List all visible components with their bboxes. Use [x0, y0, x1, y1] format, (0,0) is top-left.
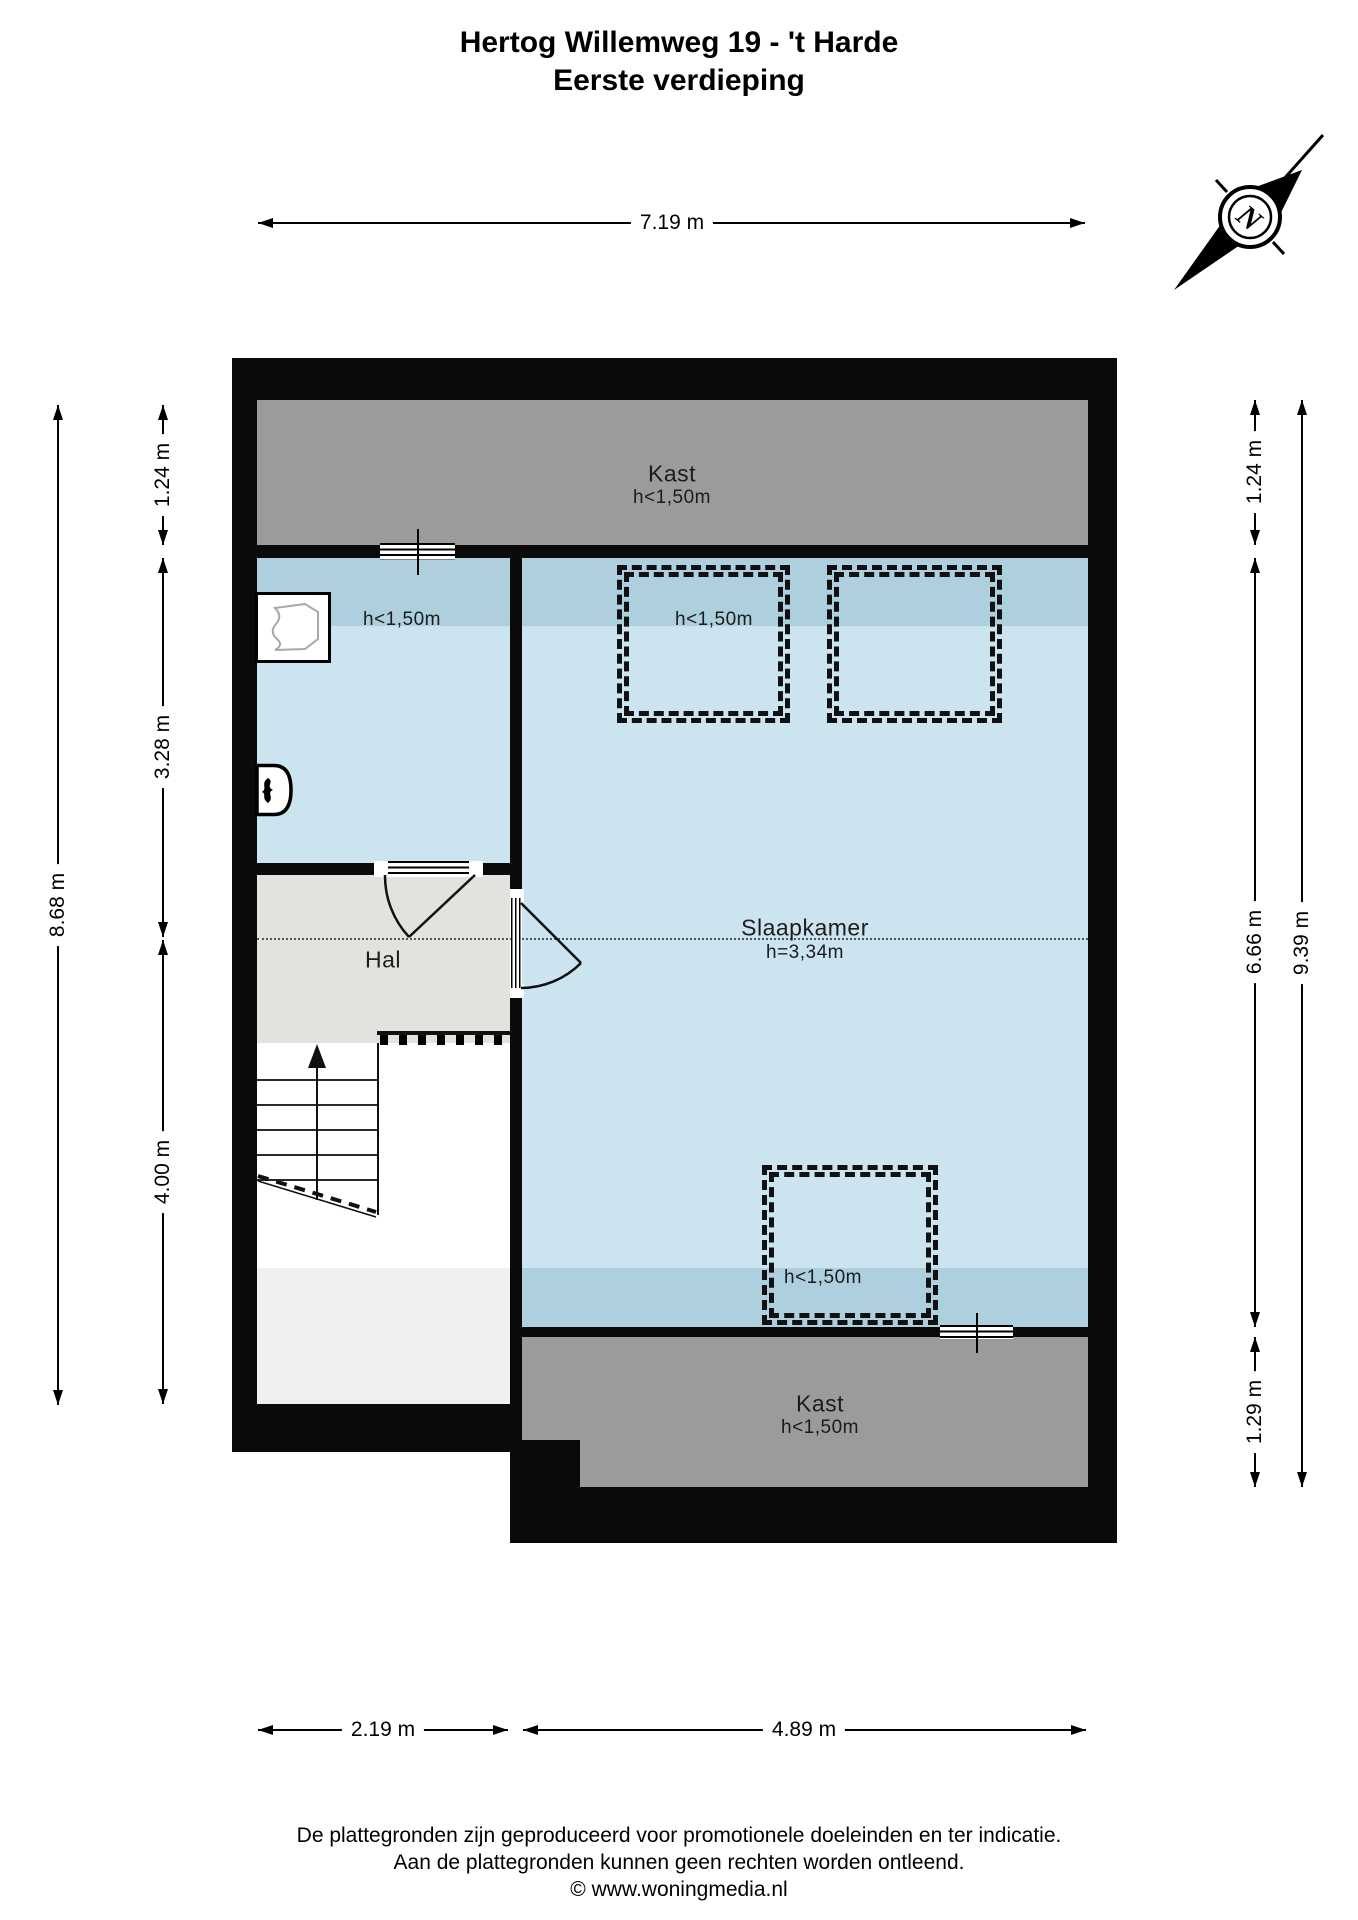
- door-top-arc: [385, 875, 409, 937]
- hal-label: Hal: [365, 947, 401, 974]
- door-right-leaf-line: [521, 903, 581, 963]
- slaapkamer-label: Slaapkamer: [741, 915, 869, 942]
- chair-icon: [255, 592, 331, 663]
- stairs-cut-dashed-line: [258, 1176, 376, 1212]
- stairs-cut-solid-line: [258, 1181, 376, 1217]
- boiler-icon: [254, 763, 294, 817]
- door-top-leaf: [409, 875, 475, 937]
- left-room-height-label: h<1,50m: [363, 609, 441, 631]
- roof-window-top-right: [827, 565, 1002, 723]
- slaapkamer-height-label: h=3,34m: [766, 942, 844, 964]
- door-right-arc: [521, 963, 581, 988]
- door-swing-arcs: [0, 0, 1358, 1920]
- roof-window-bottom-height-label: h<1,50m: [784, 1267, 862, 1289]
- kast-top-label: Kast: [648, 461, 696, 488]
- roof-window-bottom: [762, 1165, 938, 1325]
- kast-bottom-height-label: h<1,50m: [781, 1417, 859, 1439]
- roof-window-top-left: [617, 565, 790, 723]
- kast-bottom-label: Kast: [796, 1391, 844, 1418]
- roof-window-top-height-label: h<1,50m: [675, 609, 753, 631]
- floorplan-page: Hertog Willemweg 19 - 't Harde Eerste ve…: [0, 0, 1358, 1920]
- kast-top-height-label: h<1,50m: [633, 487, 711, 509]
